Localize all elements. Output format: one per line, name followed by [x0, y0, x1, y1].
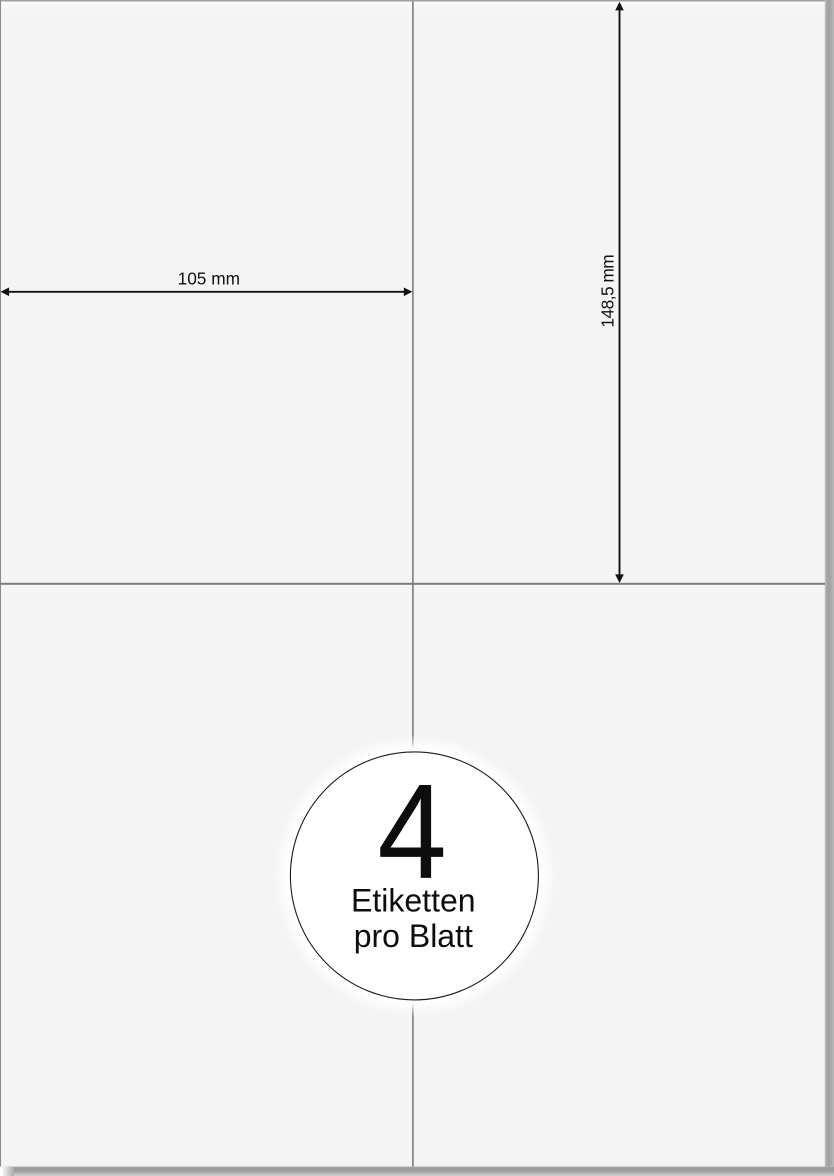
svg-text:105 mm: 105 mm: [178, 269, 240, 289]
svg-text:pro Blatt: pro Blatt: [354, 918, 473, 954]
svg-text:148,5 mm: 148,5 mm: [597, 255, 617, 328]
svg-text:Etiketten: Etiketten: [351, 882, 476, 918]
